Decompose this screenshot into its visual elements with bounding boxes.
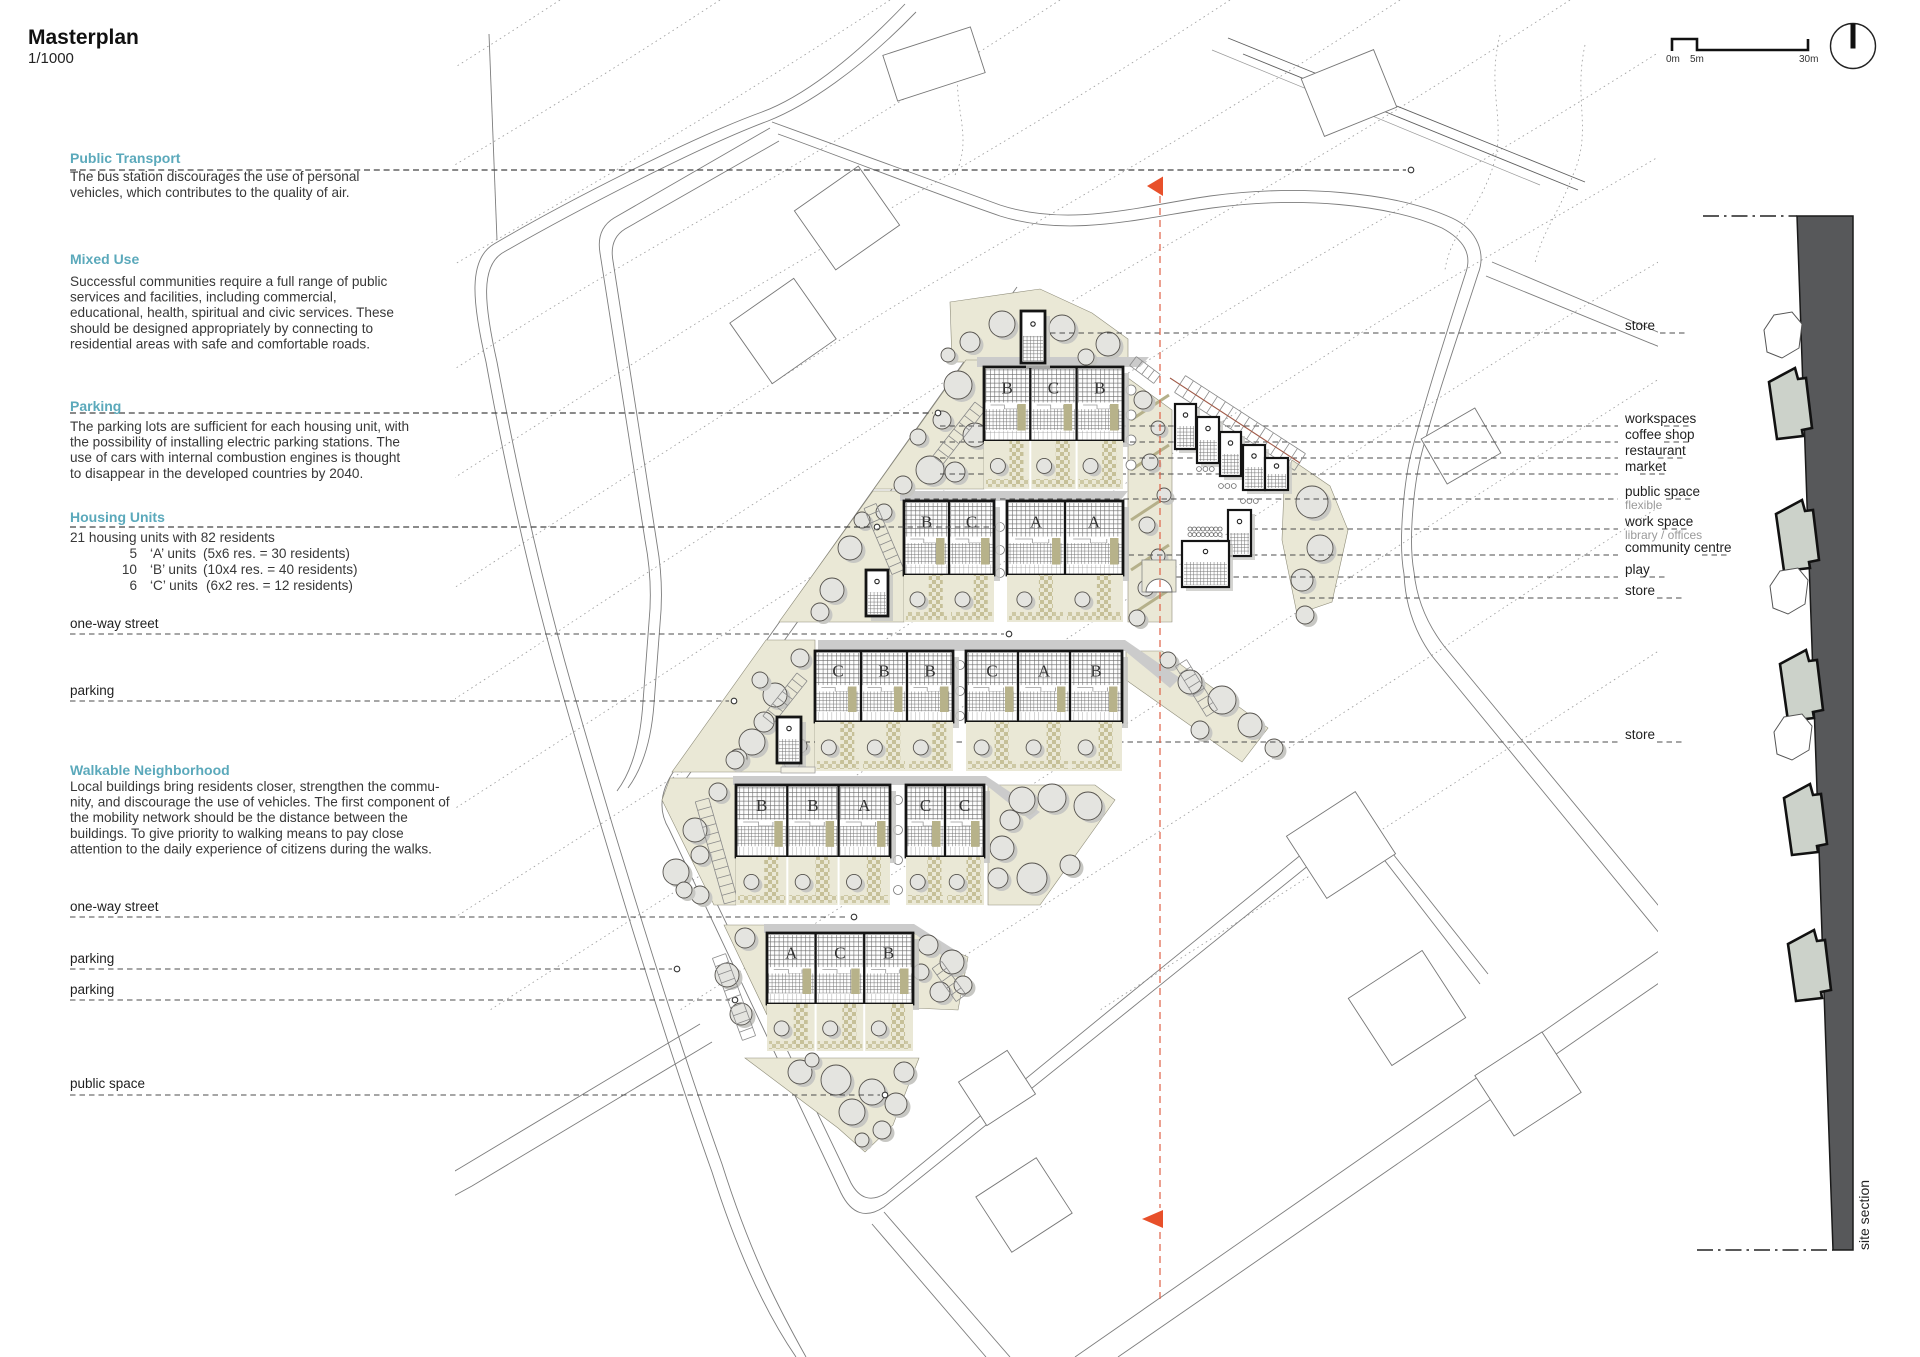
svg-text:Walkable Neighborhood: Walkable Neighborhood: [70, 762, 230, 778]
svg-text:C: C: [834, 944, 845, 963]
svg-text:A: A: [1030, 513, 1043, 532]
svg-text:21 housing units with 82 resid: 21 housing units with 82 residents: [70, 530, 275, 545]
svg-text:0m: 0m: [1666, 54, 1680, 65]
svg-text:restaurant: restaurant: [1625, 443, 1686, 458]
svg-text:the mobility network should be: the mobility network should be the dista…: [70, 810, 408, 825]
svg-text:B: B: [878, 662, 889, 681]
svg-text:B: B: [883, 944, 894, 963]
svg-text:C: C: [986, 662, 997, 681]
svg-text:parking: parking: [70, 683, 114, 698]
svg-text:public space: public space: [70, 1076, 145, 1091]
svg-text:C: C: [920, 796, 931, 815]
svg-text:community centre: community centre: [1625, 540, 1732, 555]
svg-text:buildings. To give priority to: buildings. To give priority to walking m…: [70, 826, 404, 841]
svg-text:one-way street: one-way street: [70, 899, 159, 914]
svg-text:work space: work space: [1624, 514, 1693, 529]
svg-text:should be designed appropriate: should be designed appropriately by conn…: [70, 321, 373, 336]
svg-text:public space: public space: [1625, 484, 1700, 499]
svg-text:attention to the daily experie: attention to the daily experience of cit…: [70, 841, 432, 856]
svg-text:Housing Units: Housing Units: [70, 509, 165, 525]
svg-text:store: store: [1625, 727, 1655, 742]
svg-text:use of cars with internal comb: use of cars with internal combustion eng…: [70, 450, 400, 465]
svg-text:parking: parking: [70, 982, 114, 997]
svg-text:parking: parking: [70, 951, 114, 966]
svg-text:6: 6: [129, 578, 137, 593]
svg-text:A: A: [785, 944, 798, 963]
svg-text:5: 5: [129, 546, 137, 561]
svg-text:A: A: [1088, 513, 1101, 532]
svg-text:B: B: [1090, 662, 1101, 681]
svg-text:B: B: [924, 662, 935, 681]
svg-text:store: store: [1625, 583, 1655, 598]
svg-text:B: B: [756, 796, 767, 815]
svg-text:‘B’ units: ‘B’ units: [150, 562, 197, 577]
svg-text:Successful communities require: Successful communities require a full ra…: [70, 274, 388, 289]
svg-text:workspaces: workspaces: [1624, 411, 1697, 426]
svg-text:(6x2 res. = 12 residents): (6x2 res. = 12 residents): [206, 578, 353, 593]
svg-text:1/1000: 1/1000: [28, 50, 74, 67]
svg-text:Masterplan: Masterplan: [28, 26, 139, 49]
svg-text:30m: 30m: [1799, 54, 1818, 65]
svg-text:C: C: [1048, 379, 1059, 398]
svg-text:play: play: [1625, 562, 1650, 577]
svg-text:store: store: [1625, 318, 1655, 333]
svg-text:flexible: flexible: [1625, 498, 1663, 512]
svg-text:C: C: [966, 513, 977, 532]
svg-text:to disappear in the developed: to disappear in the developed countries …: [70, 466, 363, 481]
svg-text:A: A: [1038, 662, 1051, 681]
svg-text:(10x4 res. = 40 residents): (10x4 res. = 40 residents): [203, 562, 358, 577]
svg-text:vehicles, which contributes to: vehicles, which contributes to the quali…: [70, 185, 350, 200]
svg-text:B: B: [1001, 379, 1012, 398]
svg-text:B: B: [807, 796, 818, 815]
svg-text:nity, and discourage the use o: nity, and discourage the use of vehicles…: [70, 795, 450, 810]
svg-text:‘A’ units: ‘A’ units: [150, 546, 196, 561]
svg-text:residential areas with safe an: residential areas with safe and comforta…: [70, 336, 370, 351]
svg-text:the possibility of installing: the possibility of installing electric p…: [70, 435, 400, 450]
svg-text:B: B: [1094, 379, 1105, 398]
svg-text:(5x6 res. = 30 residents): (5x6 res. = 30 residents): [203, 546, 350, 561]
svg-text:library / offices: library / offices: [1625, 528, 1702, 542]
svg-text:market: market: [1625, 459, 1667, 474]
svg-text:‘C’ units: ‘C’ units: [150, 578, 198, 593]
svg-text:C: C: [959, 796, 970, 815]
svg-text:10: 10: [122, 562, 138, 577]
svg-text:Local buildings bring resident: Local buildings bring residents closer, …: [70, 779, 440, 794]
svg-text:Parking: Parking: [70, 398, 121, 414]
svg-text:The bus station discourages th: The bus station discourages the use of p…: [70, 169, 359, 184]
svg-text:B: B: [921, 513, 932, 532]
svg-text:The parking lots are sufficien: The parking lots are sufficient for each…: [70, 419, 409, 434]
svg-text:coffee shop: coffee shop: [1625, 427, 1695, 442]
svg-text:educational, health, spiritual: educational, health, spiritual and civic…: [70, 305, 394, 320]
svg-text:one-way street: one-way street: [70, 616, 159, 631]
svg-text:A: A: [858, 796, 871, 815]
svg-text:Public Transport: Public Transport: [70, 150, 181, 166]
svg-text:5m: 5m: [1690, 54, 1704, 65]
svg-text:C: C: [832, 662, 843, 681]
svg-text:Mixed Use: Mixed Use: [70, 251, 139, 267]
svg-text:site section: site section: [1856, 1180, 1872, 1250]
svg-text:services and facilities, inclu: services and facilities, including comme…: [70, 290, 337, 305]
